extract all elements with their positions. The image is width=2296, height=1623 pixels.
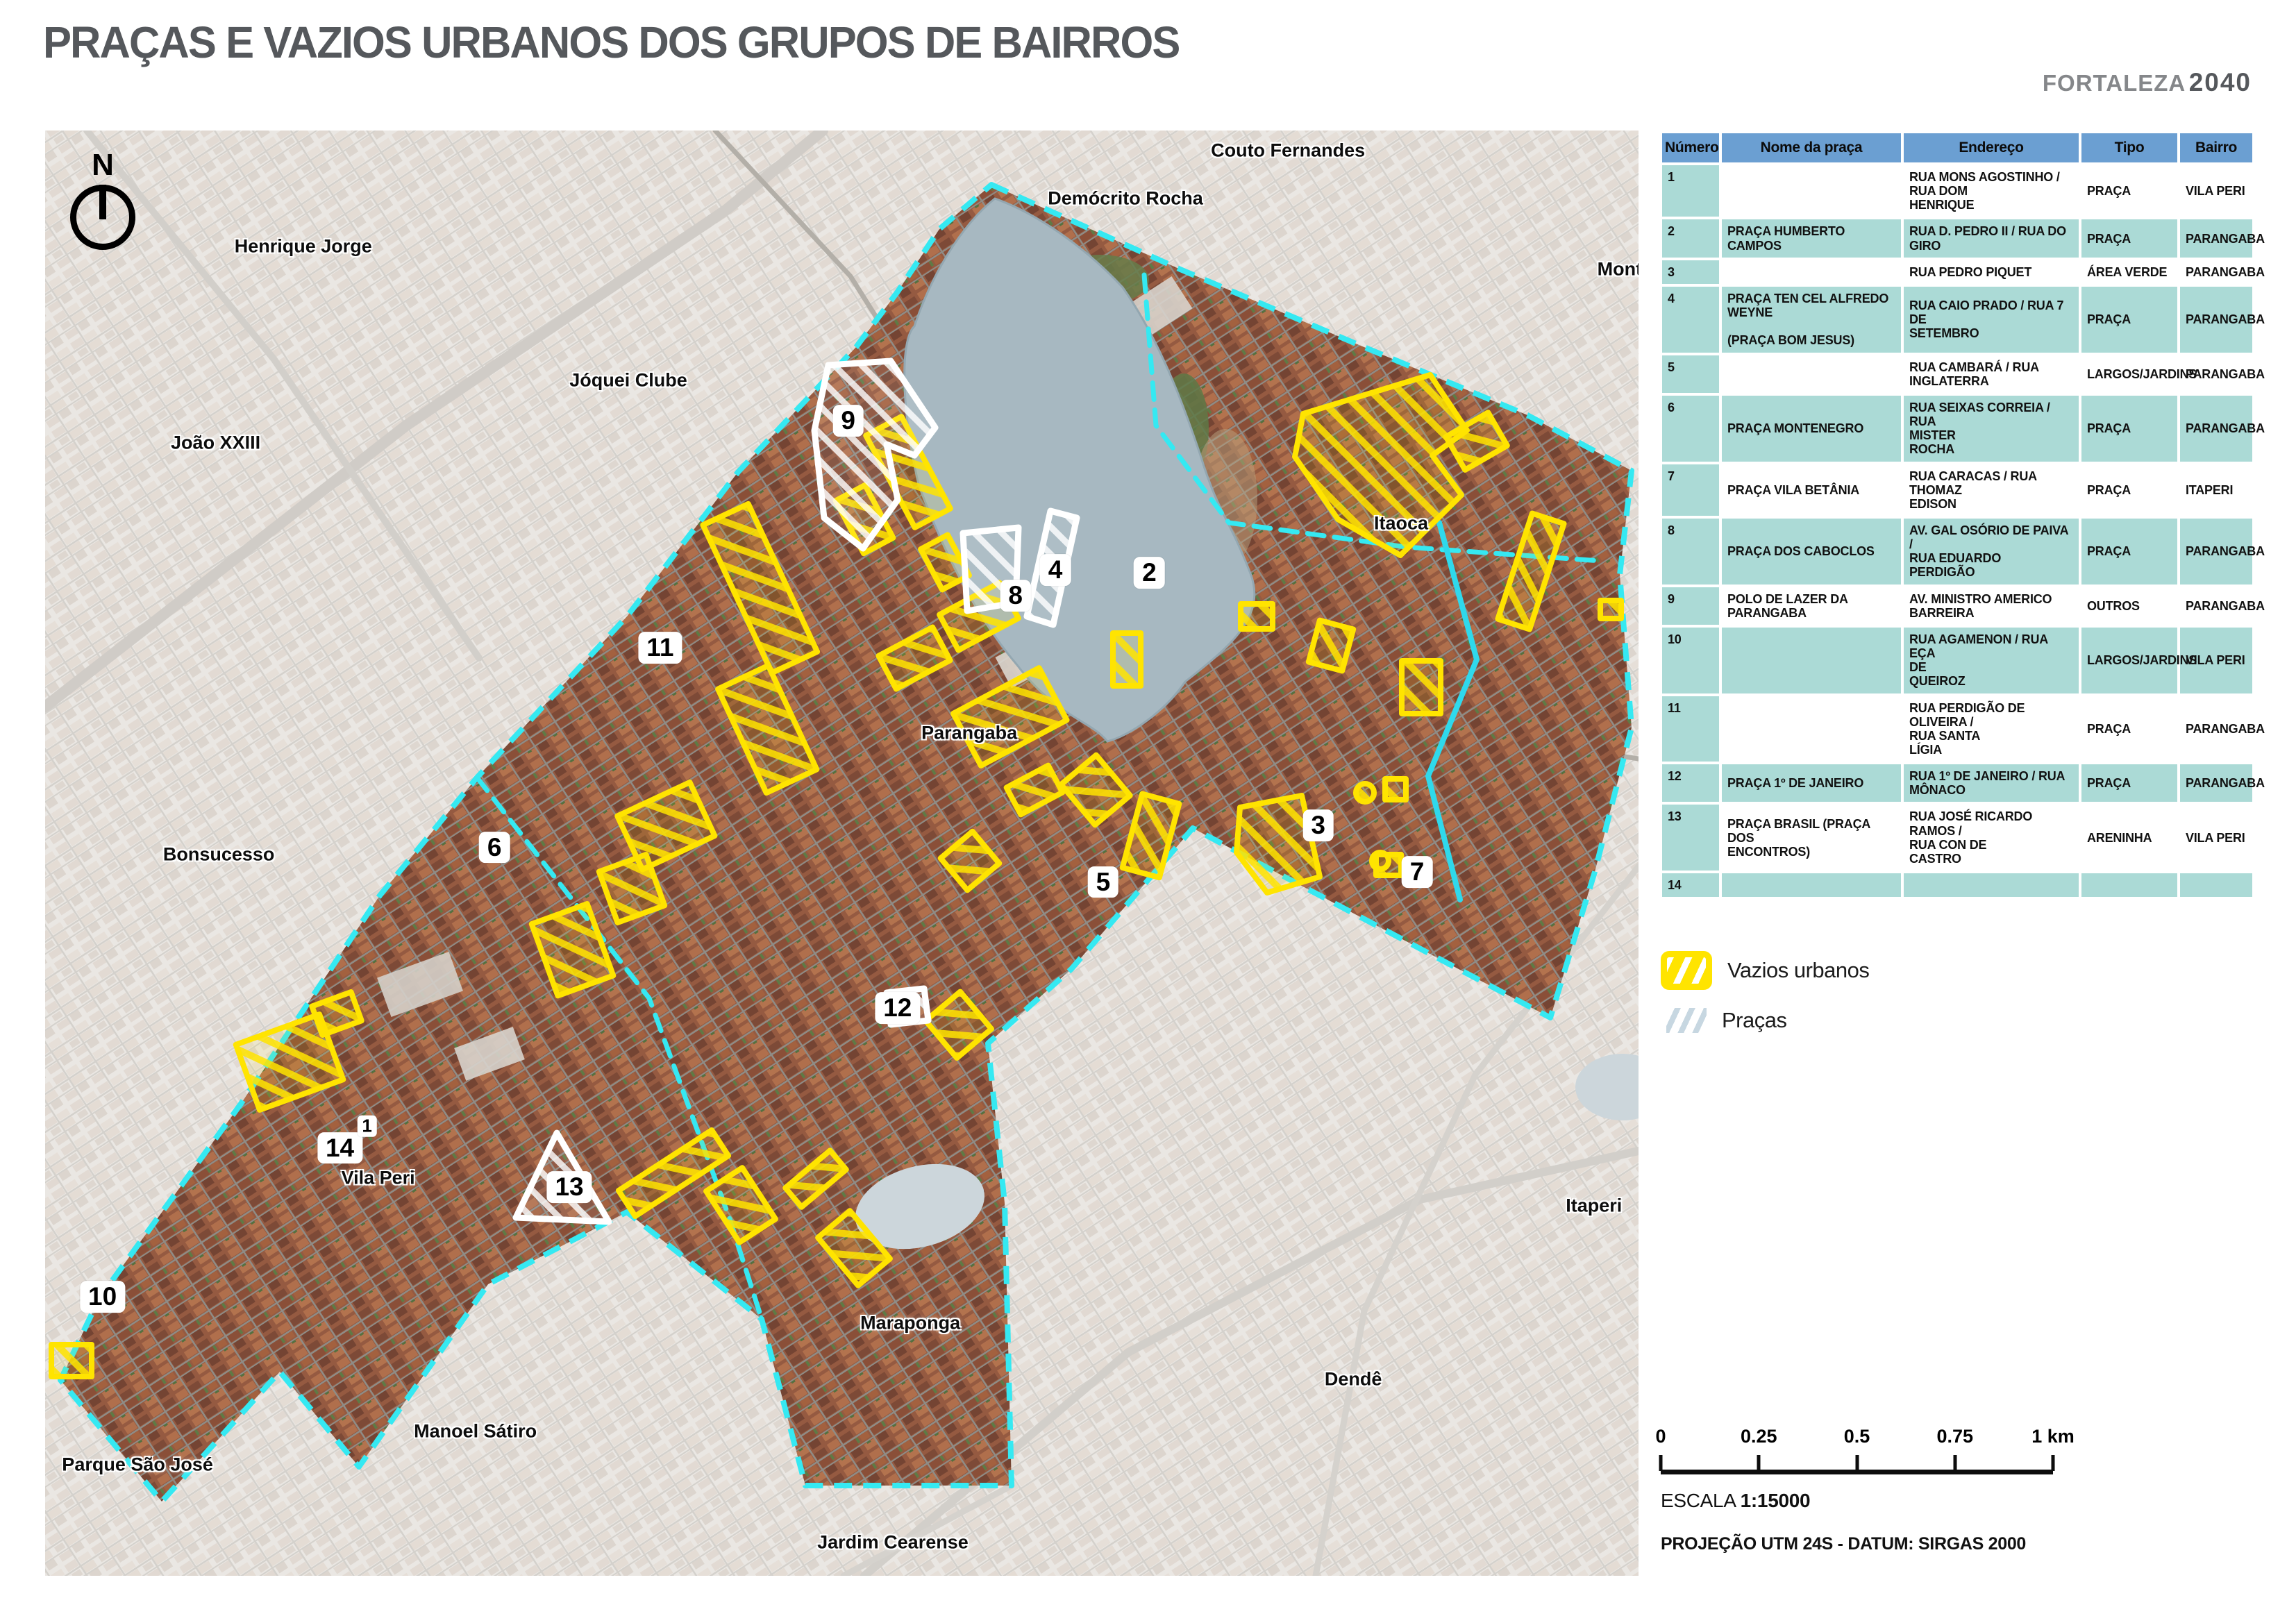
table-cell: PRAÇA xyxy=(2081,396,2177,462)
table-cell xyxy=(2081,873,2177,897)
table-cell: ARENINHA xyxy=(2081,805,2177,871)
table-cell: RUA PERDIGÃO DE OLIVEIRA / RUA SANTA LÍG… xyxy=(1904,696,2079,762)
north-arrow: N xyxy=(65,150,141,250)
table-cell: PARANGABA xyxy=(2180,260,2252,284)
table-cell: POLO DE LAZER DA PARANGABA xyxy=(1722,587,1901,625)
table-cell: 4 xyxy=(1662,287,1719,353)
table-cell: 13 xyxy=(1662,805,1719,871)
legend-label-pracas: Praças xyxy=(1722,1008,1786,1033)
table-row: 7PRAÇA VILA BETÂNIARUA CARACAS / RUA THO… xyxy=(1662,464,2252,516)
table-cell: AV. GAL OSÓRIO DE PAIVA / RUA EDUARDO PE… xyxy=(1904,519,2079,585)
north-arrow-icon xyxy=(70,185,135,250)
table-cell: RUA 1º DE JANEIRO / RUA MÔNACO xyxy=(1904,764,2079,802)
table-cell: LARGOS/JARDINS xyxy=(2081,628,2177,693)
table-row: 11RUA PERDIGÃO DE OLIVEIRA / RUA SANTA L… xyxy=(1662,696,2252,762)
map-area-label: Manoel Sátiro xyxy=(414,1420,537,1442)
map-area-label: Parque São José xyxy=(62,1454,213,1475)
table-cell: LARGOS/JARDINS xyxy=(2081,355,2177,393)
table-cell: PRAÇA HUMBERTO CAMPOS xyxy=(1722,219,1901,257)
scalebar-tick-label: 0.5 xyxy=(1844,1426,1870,1447)
legend-item-vazios: Vazios urbanos xyxy=(1661,951,2255,990)
table-cell: PARANGABA xyxy=(2180,696,2252,762)
table-cell: PRAÇA xyxy=(2081,287,2177,353)
table-row: 14 xyxy=(1662,873,2252,897)
scalebar-labels: 00.250.50.751 km xyxy=(1661,1426,2053,1454)
table-cell: OUTROS xyxy=(2081,587,2177,625)
escala-label: ESCALA xyxy=(1661,1490,1741,1511)
table-cell: 8 xyxy=(1662,519,1719,585)
table-cell: PRAÇA BRASIL (PRAÇA DOS ENCONTROS) xyxy=(1722,805,1901,871)
map-area-label: Montese xyxy=(1598,258,1639,280)
scalebar-tick-label: 1 km xyxy=(2031,1426,2075,1447)
table-cell: PRAÇA xyxy=(2081,165,2177,217)
scalebar-tick xyxy=(2052,1455,2055,1471)
table-header-cell: Tipo xyxy=(2081,133,2177,162)
table-cell: PRAÇA xyxy=(2081,764,2177,802)
map-area-label: Itaperi xyxy=(1566,1195,1622,1217)
table-row: 3RUA PEDRO PIQUETÁREA VERDEPARANGABA xyxy=(1662,260,2252,284)
map-area-label: Maraponga xyxy=(860,1312,960,1334)
table-cell: 11 xyxy=(1662,696,1719,762)
map-marker-10: 10 xyxy=(80,1281,125,1313)
table-row: 12PRAÇA 1º DE JANEIRORUA 1º DE JANEIRO /… xyxy=(1662,764,2252,802)
table-cell: RUA PEDRO PIQUET xyxy=(1904,260,2079,284)
map-marker-9: 9 xyxy=(832,405,864,437)
table-header-row: NúmeroNome da praçaEndereçoTipoBairro xyxy=(1662,133,2252,162)
table-cell: PRAÇA xyxy=(2081,519,2177,585)
map-marker-14: 14 xyxy=(317,1132,362,1164)
table-cell: PARANGABA xyxy=(2180,219,2252,257)
table-cell: PRAÇA xyxy=(2081,696,2177,762)
map-marker-1: 1 xyxy=(357,1116,376,1137)
legend-item-pracas: Praças xyxy=(1661,1008,2255,1033)
map-marker-4: 4 xyxy=(1040,554,1071,586)
vazios-urbanos-swatch-icon xyxy=(1661,951,1712,990)
table-cell xyxy=(1904,873,2079,897)
table-cell: PRAÇA xyxy=(2081,219,2177,257)
table-cell: PARANGABA xyxy=(2180,764,2252,802)
page-title: PRAÇAS E VAZIOS URBANOS DOS GRUPOS DE BA… xyxy=(43,17,1179,68)
scalebar-tick xyxy=(1953,1455,1956,1471)
table-cell: VILA PERI xyxy=(2180,165,2252,217)
map-marker-12: 12 xyxy=(875,992,920,1024)
map-graphics xyxy=(45,131,1639,1576)
escala-value: 1:15000 xyxy=(1741,1490,1811,1511)
table-row: 6PRAÇA MONTENEGRORUA SEIXAS CORREIA / RU… xyxy=(1662,396,2252,462)
table-cell: PRAÇA TEN CEL ALFREDO WEYNE (PRAÇA BOM J… xyxy=(1722,287,1901,353)
map-marker-8: 8 xyxy=(1000,580,1031,612)
table-cell: PARANGABA xyxy=(2180,355,2252,393)
map-area-label: Parangaba xyxy=(921,723,1017,744)
table-header-cell: Número xyxy=(1662,133,1719,162)
legend: Vazios urbanos Praças xyxy=(1661,951,2255,1033)
table-cell: RUA CAMBARÁ / RUA INGLATERRA xyxy=(1904,355,2079,393)
table-cell: RUA D. PEDRO II / RUA DO GIRO xyxy=(1904,219,2079,257)
scalebar-tick xyxy=(1757,1455,1761,1471)
table-cell: 1 xyxy=(1662,165,1719,217)
brand-year: 2040 xyxy=(2189,68,2252,96)
table-cell xyxy=(1722,628,1901,693)
map-marker-3: 3 xyxy=(1302,810,1334,842)
table-cell: PARANGABA xyxy=(2180,287,2252,353)
table-cell: PARANGABA xyxy=(2180,587,2252,625)
table-cell: 12 xyxy=(1662,764,1719,802)
scalebar-tick-label: 0.75 xyxy=(1936,1426,1973,1447)
scalebar: 00.250.50.751 km xyxy=(1661,1426,2053,1484)
satellite-map: N Couto FernandesDemócrito RochaHenrique… xyxy=(45,131,1639,1576)
table-row: 5RUA CAMBARÁ / RUA INGLATERRALARGOS/JARD… xyxy=(1662,355,2252,393)
table-header-cell: Endereço xyxy=(1904,133,2079,162)
brand-logo: FORTALEZA 2040 xyxy=(2043,68,2252,97)
table-cell: PRAÇA VILA BETÂNIA xyxy=(1722,464,1901,516)
map-area-label: Jóquei Clube xyxy=(569,370,687,392)
table-cell: RUA JOSÉ RICARDO RAMOS / RUA CON DE CAST… xyxy=(1904,805,2079,871)
map-area-label: Bonsucesso xyxy=(163,844,275,866)
table-cell: RUA AGAMENON / RUA EÇA DE QUEIROZ xyxy=(1904,628,2079,693)
table-cell: AV. MINISTRO AMERICO BARREIRA xyxy=(1904,587,2079,625)
north-label: N xyxy=(65,150,141,180)
table-row: 10RUA AGAMENON / RUA EÇA DE QUEIROZLARGO… xyxy=(1662,628,2252,693)
table-cell: RUA MONS AGOSTINHO / RUA DOM HENRIQUE xyxy=(1904,165,2079,217)
map-area-label: Henrique Jorge xyxy=(235,235,372,257)
table-cell: PRAÇA 1º DE JANEIRO xyxy=(1722,764,1901,802)
table-body: 1RUA MONS AGOSTINHO / RUA DOM HENRIQUEPR… xyxy=(1662,165,2252,897)
table-cell: PARANGABA xyxy=(2180,396,2252,462)
table-cell xyxy=(1722,165,1901,217)
table-row: 4PRAÇA TEN CEL ALFREDO WEYNE (PRAÇA BOM … xyxy=(1662,287,2252,353)
scalebar-tick-label: 0.25 xyxy=(1741,1426,1777,1447)
table-row: 8PRAÇA DOS CABOCLOSAV. GAL OSÓRIO DE PAI… xyxy=(1662,519,2252,585)
table-cell xyxy=(1722,260,1901,284)
right-panel: NúmeroNome da praçaEndereçoTipoBairro 1R… xyxy=(1659,131,2255,1051)
table-cell: ITAPERI xyxy=(2180,464,2252,516)
table-cell: VILA PERI xyxy=(2180,805,2252,871)
pracas-table: NúmeroNome da praçaEndereçoTipoBairro 1R… xyxy=(1659,131,2255,900)
table-cell: 14 xyxy=(1662,873,1719,897)
map-area-label: Dendê xyxy=(1325,1368,1382,1390)
table-cell: 9 xyxy=(1662,587,1719,625)
table-cell: 7 xyxy=(1662,464,1719,516)
table-row: 2PRAÇA HUMBERTO CAMPOSRUA D. PEDRO II / … xyxy=(1662,219,2252,257)
table-cell: PRAÇA xyxy=(2081,464,2177,516)
table-cell: ÁREA VERDE xyxy=(2081,260,2177,284)
map-area-label: Couto Fernandes xyxy=(1211,140,1365,162)
table-cell: PRAÇA MONTENEGRO xyxy=(1722,396,1901,462)
map-marker-5: 5 xyxy=(1088,866,1119,898)
map-area-label: Jardim Cearense xyxy=(817,1532,969,1554)
projecao-text: PROJEÇÃO UTM 24S - DATUM: SIRGAS 2000 xyxy=(1661,1534,2026,1554)
table-cell: RUA CARACAS / RUA THOMAZ EDISON xyxy=(1904,464,2079,516)
map-marker-7: 7 xyxy=(1402,856,1433,888)
map-marker-6: 6 xyxy=(479,832,510,864)
map-area-label: João XXIII xyxy=(171,432,260,453)
scalebar-tick xyxy=(1659,1455,1663,1471)
table-row: 9POLO DE LAZER DA PARANGABAAV. MINISTRO … xyxy=(1662,587,2252,625)
map-marker-2: 2 xyxy=(1134,557,1165,589)
map-area-label: Itaoca xyxy=(1374,513,1428,535)
table-header-cell: Bairro xyxy=(2180,133,2252,162)
table-cell xyxy=(1722,696,1901,762)
legend-label-vazios: Vazios urbanos xyxy=(1727,958,1869,983)
table-cell: 2 xyxy=(1662,219,1719,257)
scalebar-tick-label: 0 xyxy=(1655,1426,1666,1447)
escala-text: ESCALA 1:15000 xyxy=(1661,1490,1810,1512)
brand-name: FORTALEZA xyxy=(2043,70,2186,96)
table-cell: VILA PERI xyxy=(2180,628,2252,693)
map-marker-11: 11 xyxy=(638,632,682,664)
table-cell: PARANGABA xyxy=(2180,519,2252,585)
table-cell: RUA SEIXAS CORREIA / RUA MISTER ROCHA xyxy=(1904,396,2079,462)
table-cell xyxy=(2180,873,2252,897)
scalebar-tick xyxy=(1855,1455,1859,1471)
table-cell xyxy=(1722,355,1901,393)
map-area-label: Demócrito Rocha xyxy=(1048,187,1203,209)
map-marker-13: 13 xyxy=(546,1171,592,1203)
table-cell: RUA CAIO PRADO / RUA 7 DE SETEMBRO xyxy=(1904,287,2079,353)
table-header-cell: Nome da praça xyxy=(1722,133,1901,162)
pracas-swatch-icon xyxy=(1666,1008,1707,1033)
table-cell: 5 xyxy=(1662,355,1719,393)
table-row: 13PRAÇA BRASIL (PRAÇA DOS ENCONTROS)RUA … xyxy=(1662,805,2252,871)
table-cell: 3 xyxy=(1662,260,1719,284)
table-cell: 6 xyxy=(1662,396,1719,462)
table-cell: PRAÇA DOS CABOCLOS xyxy=(1722,519,1901,585)
table-cell xyxy=(1722,873,1901,897)
table-row: 1RUA MONS AGOSTINHO / RUA DOM HENRIQUEPR… xyxy=(1662,165,2252,217)
table-cell: 10 xyxy=(1662,628,1719,693)
map-area-label: Vila Peri xyxy=(342,1168,415,1189)
scalebar-bar xyxy=(1661,1454,2053,1474)
